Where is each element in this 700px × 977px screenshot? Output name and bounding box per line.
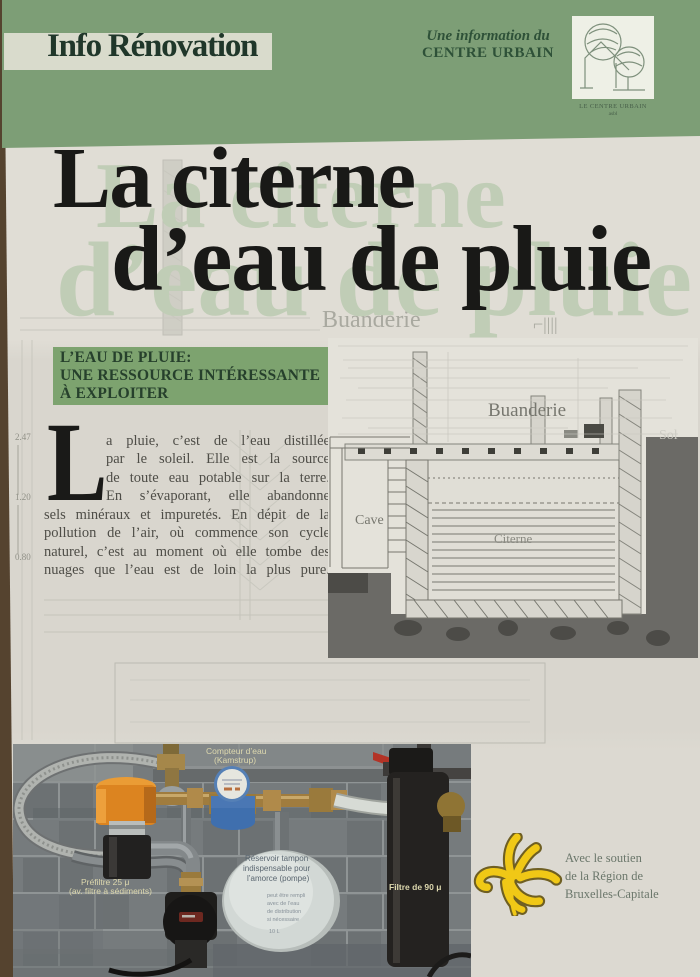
svg-text:de distribution: de distribution [267,909,301,915]
svg-text:Buanderie: Buanderie [488,400,566,421]
svg-text:10 L: 10 L [269,929,280,935]
svg-text:peut être rempli: peut être rempli [267,893,305,899]
svg-text:Réservoir tampon: Réservoir tampon [245,854,308,863]
svg-text:(av. filtre à sédiments): (av. filtre à sédiments) [69,886,152,896]
svg-text:Citerne: Citerne [494,531,532,546]
svg-text:avec de l’eau: avec de l’eau [267,901,299,907]
svg-text:l’amorce (pompe): l’amorce (pompe) [247,874,310,883]
svg-text:Sol: Sol [659,428,678,443]
svg-text:Filtre de 90 μ: Filtre de 90 μ [389,882,441,892]
svg-text:si nécessaire: si nécessaire [267,917,299,923]
svg-text:1.20: 1.20 [15,492,31,502]
svg-text:2.47: 2.47 [15,432,31,442]
svg-text:0.80: 0.80 [15,552,31,562]
svg-text:indispensable pour: indispensable pour [243,864,310,873]
svg-text:Cave: Cave [355,513,384,528]
svg-text:(Kamstrup): (Kamstrup) [214,755,256,765]
